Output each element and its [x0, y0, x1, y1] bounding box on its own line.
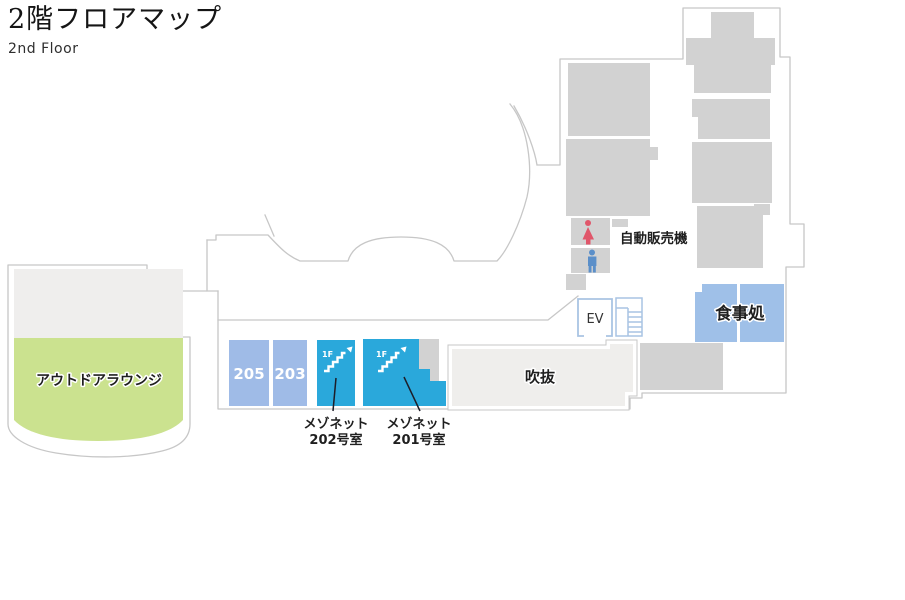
gray-room-right-4 — [697, 206, 763, 268]
floor-map-svg: アウトドアラウンジ 205 203 1F 1F — [0, 0, 905, 600]
vending-machine-label: 自動販売機 — [620, 230, 688, 247]
gray-room-right-4-tab — [754, 204, 770, 215]
gray-room-beside-atrium — [640, 343, 723, 390]
staircase-icon — [616, 298, 642, 336]
floor-map-page: 2階フロアマップ 2nd Floor — [0, 0, 905, 600]
corridor-bottom-wall — [218, 296, 578, 320]
page-title: 2階フロアマップ — [8, 4, 222, 35]
maisonette-202-label-1: メゾネット — [303, 416, 368, 432]
gray-block-small — [566, 274, 586, 290]
lounge-junction-wall — [207, 240, 218, 291]
room-outdoor-lounge — [14, 338, 183, 441]
room-205-label: 205 — [233, 365, 264, 383]
atrium-label: 吹抜 — [525, 368, 556, 386]
corridor-top-wall — [207, 104, 530, 261]
vending-machine-block — [612, 219, 628, 227]
maisonette-201-label-2: 201号室 — [392, 432, 445, 448]
gray-room-right-2 — [692, 99, 770, 139]
maisonette-202-label-2: 202号室 — [309, 432, 362, 448]
elevator-label: EV — [586, 312, 603, 327]
wall-spur — [265, 215, 274, 236]
maisonette-201-label-1: メゾネット — [386, 416, 451, 432]
lounge-upper-deck — [14, 269, 183, 338]
page-subtitle: 2nd Floor — [8, 41, 222, 57]
room-203-label: 203 — [274, 365, 305, 383]
guest-rooms: 205 203 1F 1F メゾネット 202号室 メゾネット 201号室 — [229, 339, 452, 448]
title-block: 2階フロアマップ 2nd Floor — [8, 4, 222, 57]
dining-label: 食事処 — [715, 303, 765, 323]
atrium-area: 吹抜 — [448, 340, 637, 410]
stairs-201-floor-tag: 1F — [376, 350, 387, 359]
dining-area: 食事処 — [695, 284, 784, 342]
gray-room-right-1 — [686, 12, 775, 93]
outdoor-lounge-label: アウトドアラウンジ — [36, 373, 162, 389]
gray-room-left-top — [568, 63, 650, 136]
outdoor-lounge-area: アウトドアラウンジ — [14, 269, 183, 441]
elevator-area: EV — [578, 298, 642, 336]
stairs-202-floor-tag: 1F — [322, 350, 333, 359]
gray-room-left-bottom — [566, 139, 658, 216]
gray-room-right-3 — [692, 142, 772, 203]
